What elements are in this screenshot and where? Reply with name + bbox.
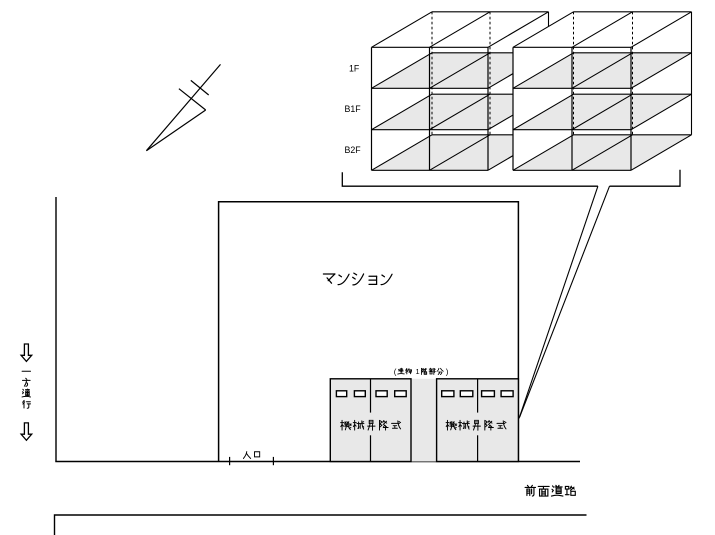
svg-text:): ) [446,367,449,376]
svg-text:B1F: B1F [345,104,362,114]
svg-text:1F: 1F [349,63,360,73]
svg-text:B2F: B2F [345,145,362,155]
svg-text:1: 1 [416,367,420,376]
svg-text:(: ( [394,367,397,376]
